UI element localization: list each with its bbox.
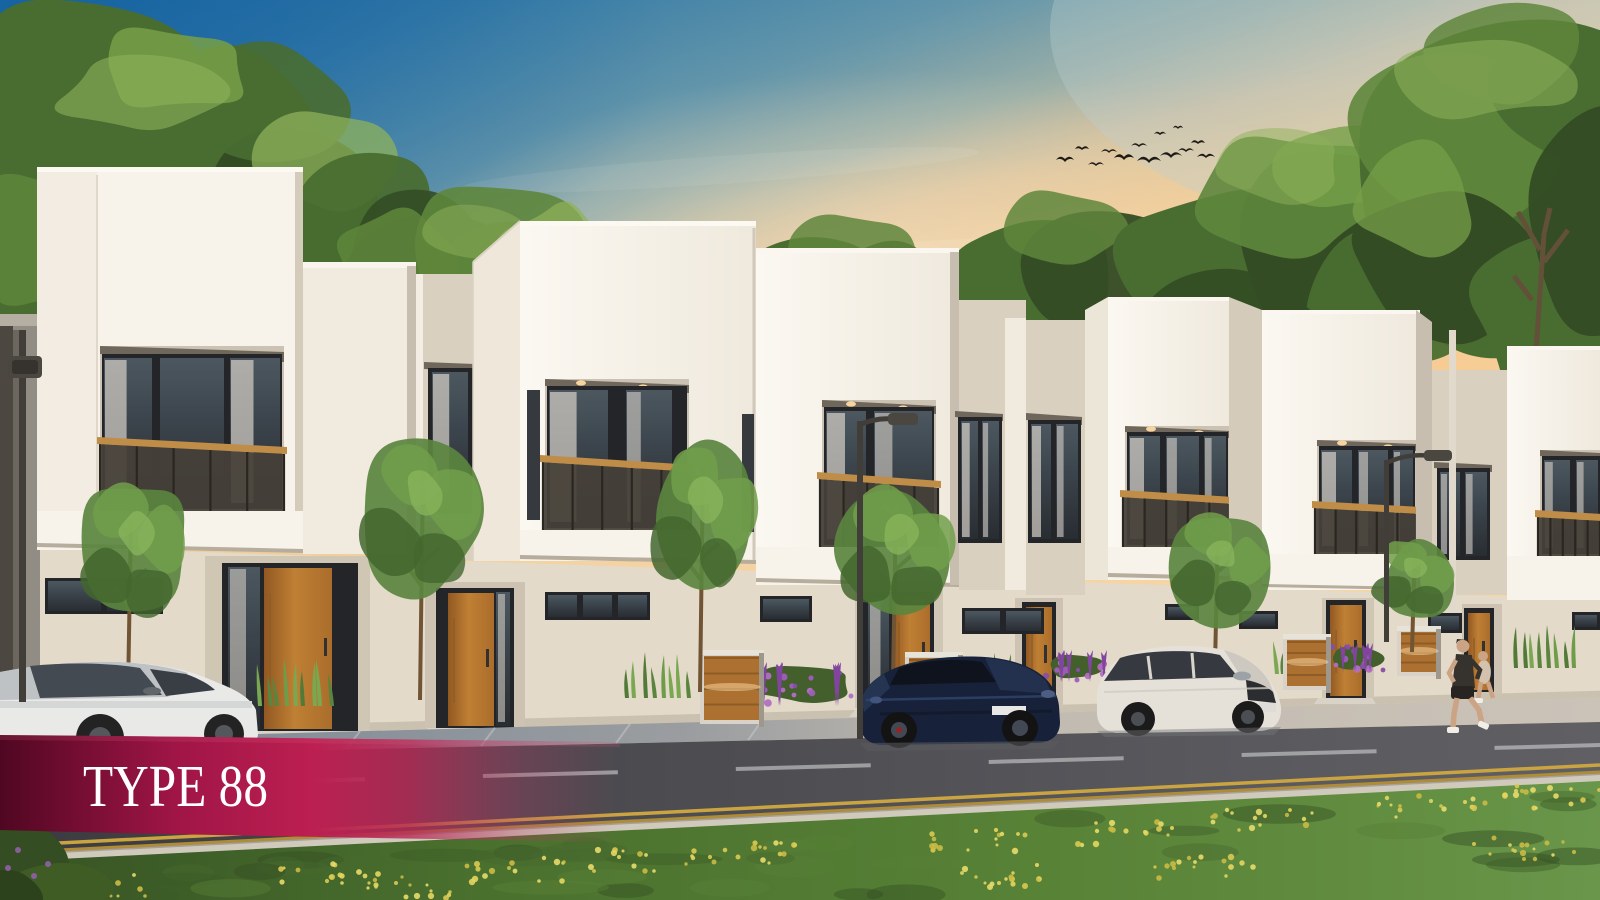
svg-text:TYPE 88: TYPE 88 xyxy=(83,753,268,819)
